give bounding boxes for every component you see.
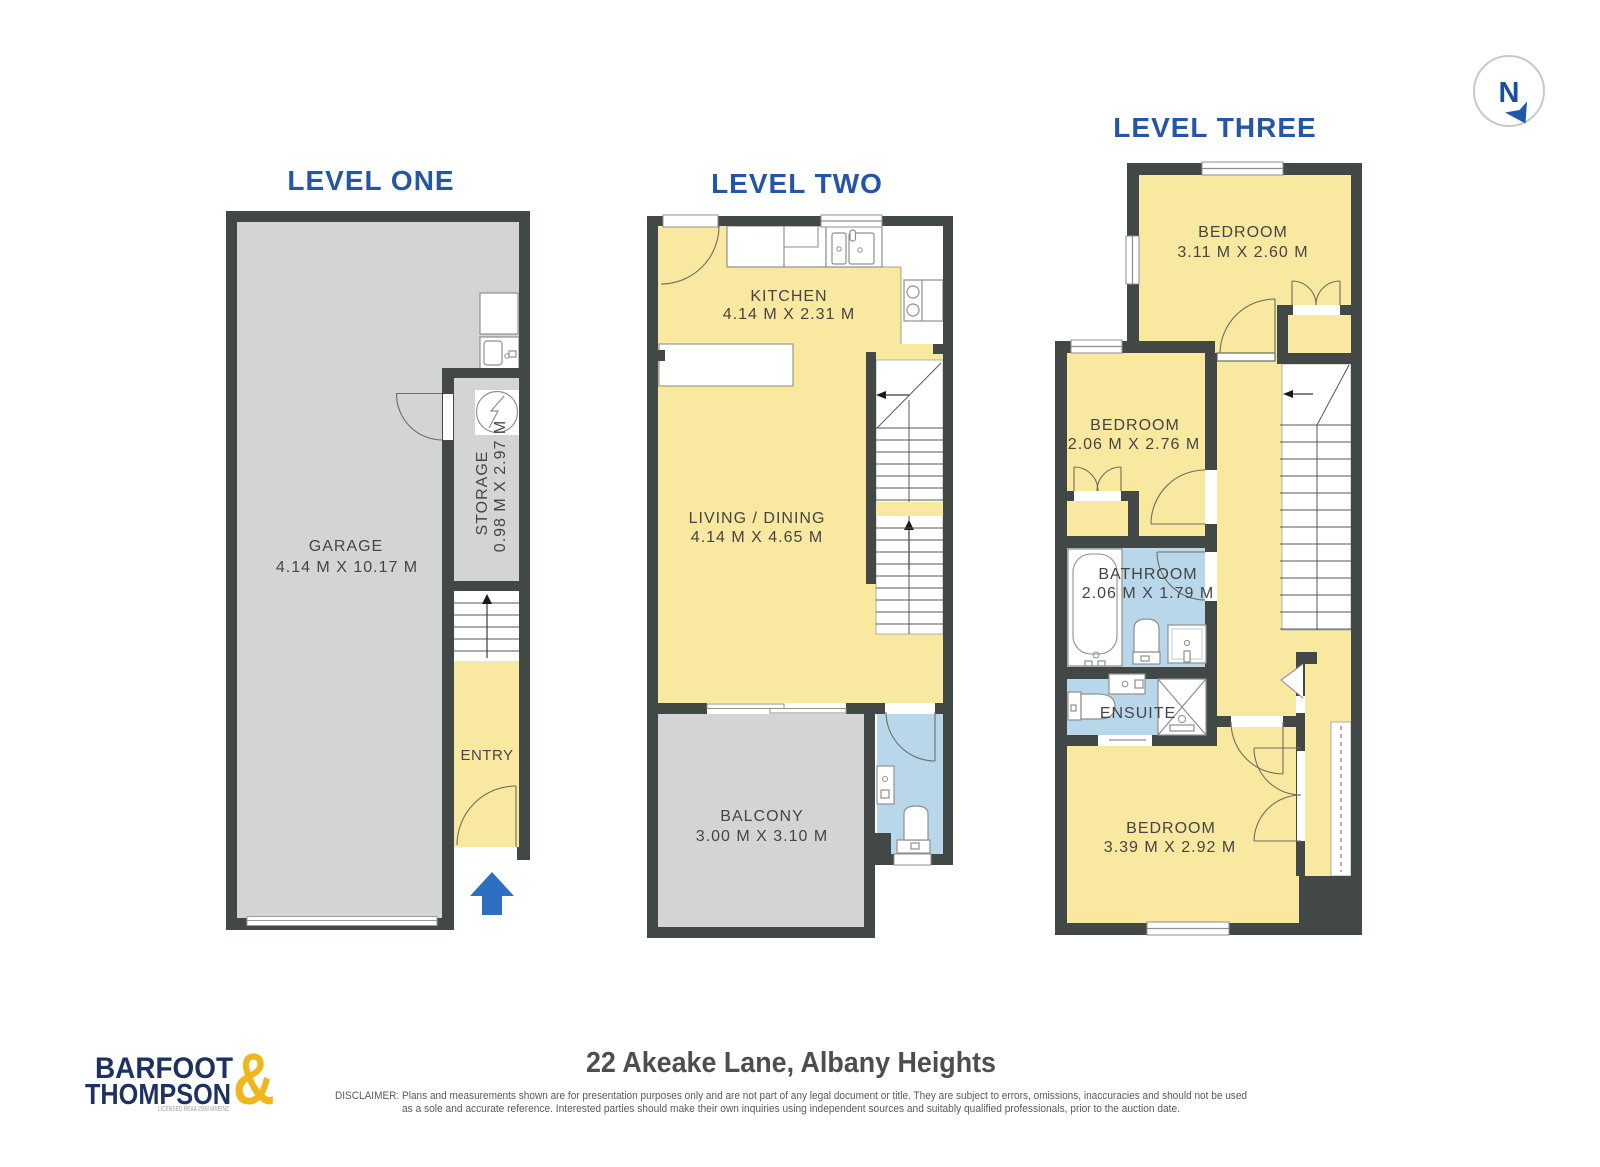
svg-text:4.14 M X 10.17 M: 4.14 M X 10.17 M [276,559,418,576]
svg-text:BEDROOM: BEDROOM [1198,224,1288,241]
svg-text:2.06 M X 1.79 M: 2.06 M X 1.79 M [1082,585,1214,602]
svg-text:KITCHEN: KITCHEN [750,288,827,305]
svg-text:DISCLAIMER: Plans and measurem: DISCLAIMER: Plans and measurements shown… [335,1090,1247,1102]
svg-text:3.11 M X 2.60 M: 3.11 M X 2.60 M [1177,244,1308,261]
svg-text:4.14 M X 2.31 M: 4.14 M X 2.31 M [723,306,855,323]
svg-text:GARAGE: GARAGE [309,538,383,555]
svg-text:3.39 M X 2.92 M: 3.39 M X 2.92 M [1104,839,1236,856]
svg-text:ENTRY: ENTRY [460,747,513,764]
svg-text:0.98 M X 2.97 M: 0.98 M X 2.97 M [492,420,509,552]
svg-text:&: & [233,1039,275,1120]
svg-text:BALCONY: BALCONY [720,808,803,825]
svg-text:LICENSED REAA 2008 MREINZ: LICENSED REAA 2008 MREINZ [158,1106,229,1113]
svg-text:LEVEL TWO: LEVEL TWO [711,168,883,199]
svg-text:2.06 M X 2.76 M: 2.06 M X 2.76 M [1068,436,1200,453]
svg-text:22 Akeake Lane, Albany Heights: 22 Akeake Lane, Albany Heights [586,1047,996,1079]
svg-text:4.14 M X 4.65 M: 4.14 M X 4.65 M [691,529,823,546]
svg-text:STORAGE: STORAGE [474,451,491,536]
svg-text:LIVING / DINING: LIVING / DINING [689,510,826,527]
svg-text:as a sole and accurate referen: as a sole and accurate reference. Intere… [402,1103,1180,1115]
svg-text:BEDROOM: BEDROOM [1126,820,1216,837]
svg-text:BATHROOM: BATHROOM [1098,566,1197,583]
svg-text:LEVEL ONE: LEVEL ONE [287,165,454,196]
svg-text:N: N [1499,77,1520,109]
svg-text:3.00 M X 3.10 M: 3.00 M X 3.10 M [696,828,828,845]
svg-text:ENSUITE: ENSUITE [1100,705,1176,722]
svg-text:BEDROOM: BEDROOM [1090,417,1180,434]
svg-text:LEVEL THREE: LEVEL THREE [1113,112,1316,143]
